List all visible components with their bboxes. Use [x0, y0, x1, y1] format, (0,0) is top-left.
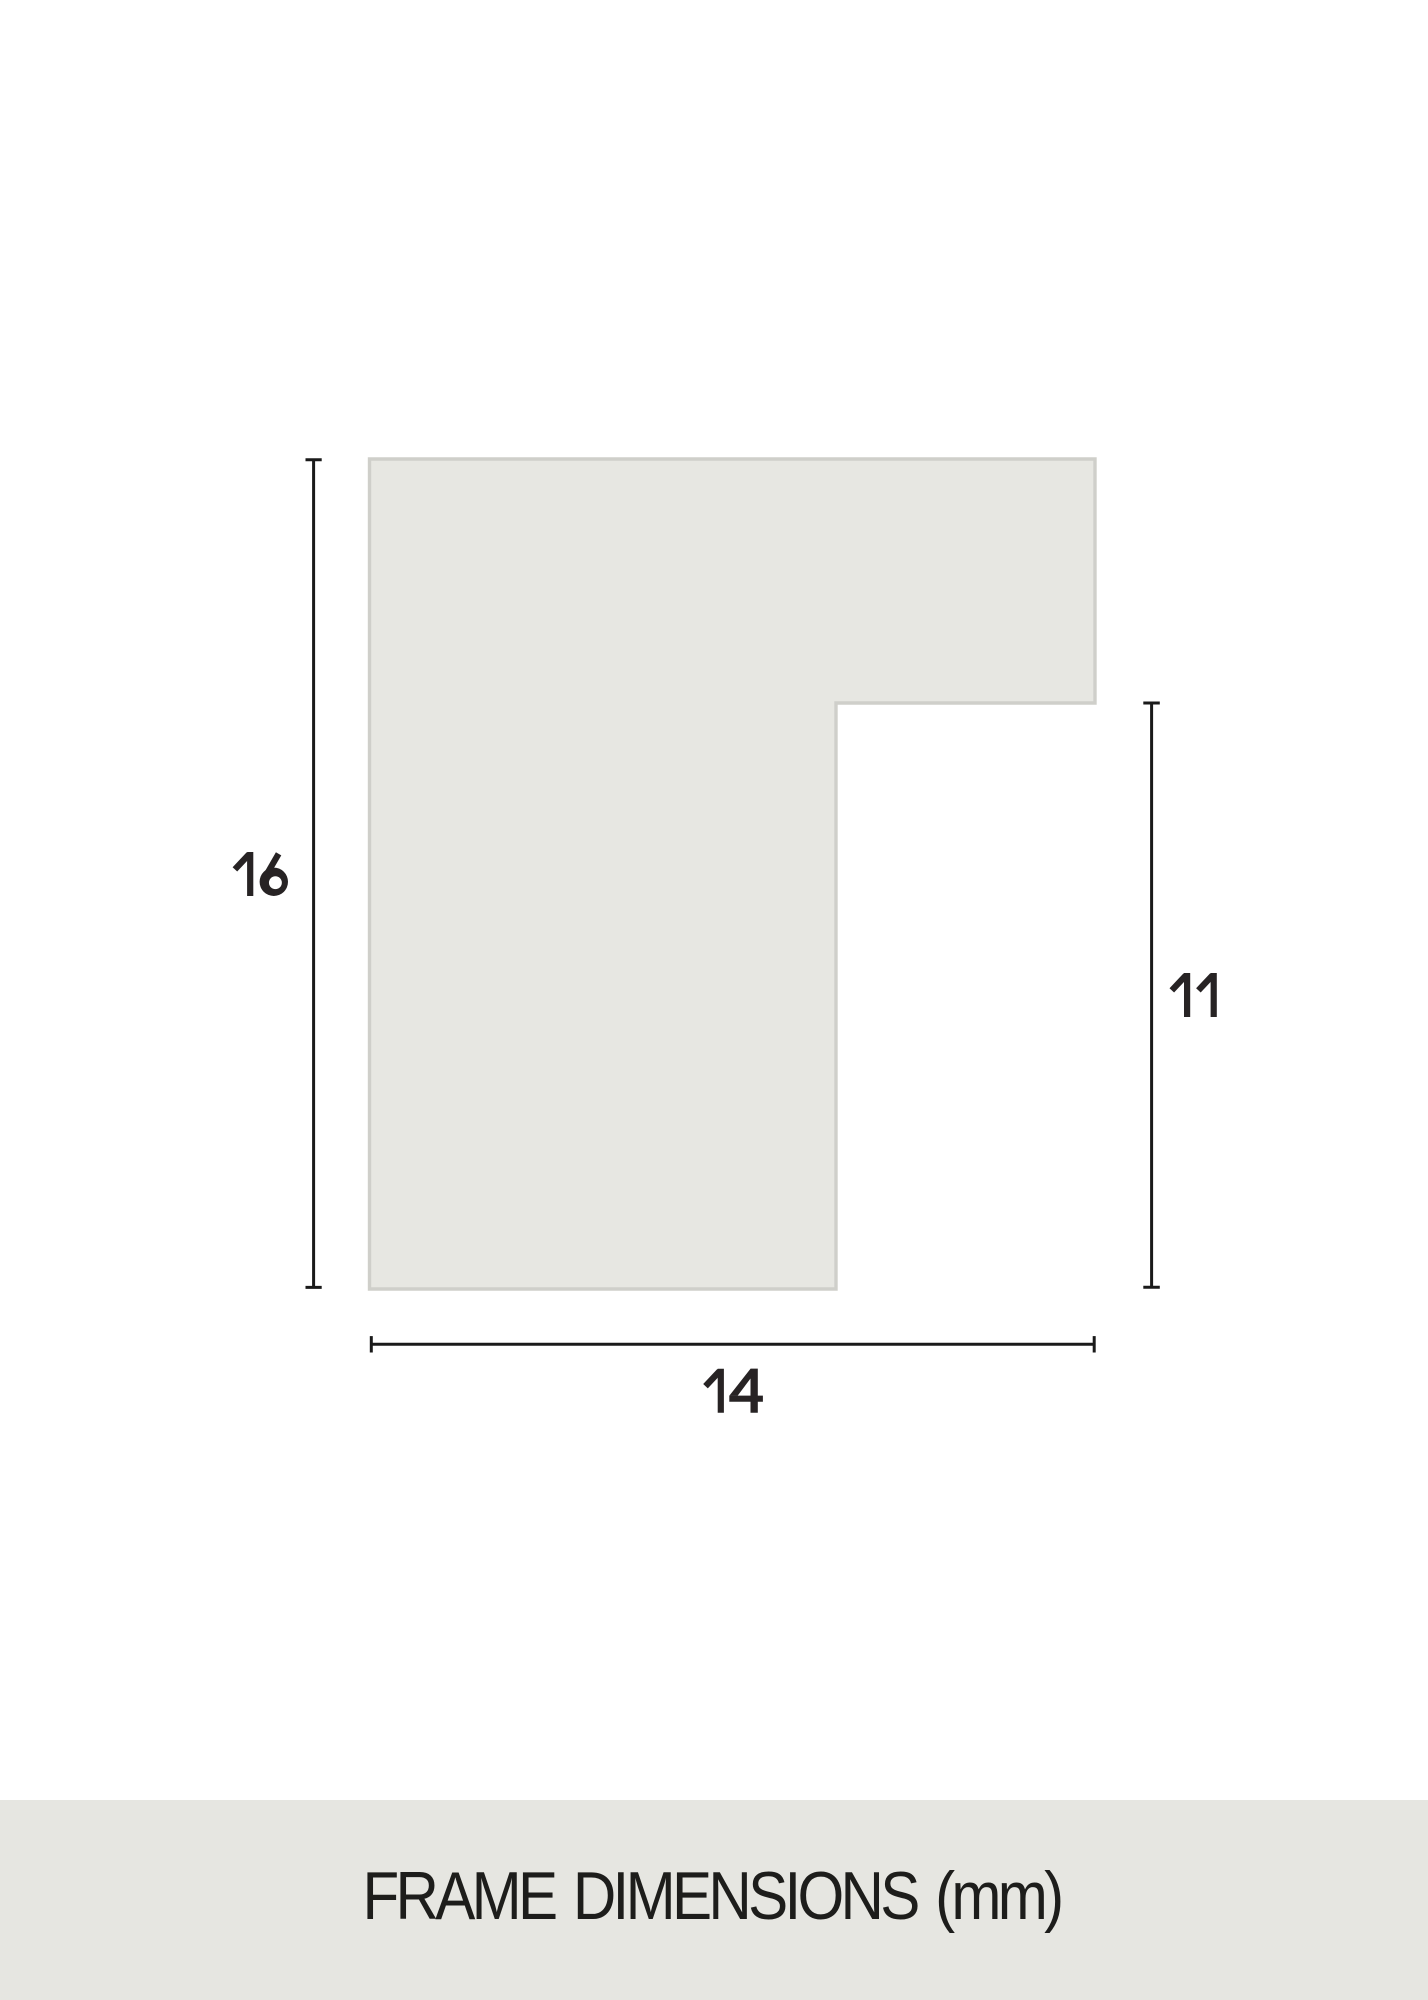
- svg-text:FRAME DIMENSIONS (mm): FRAME DIMENSIONS (mm): [362, 1858, 1061, 1934]
